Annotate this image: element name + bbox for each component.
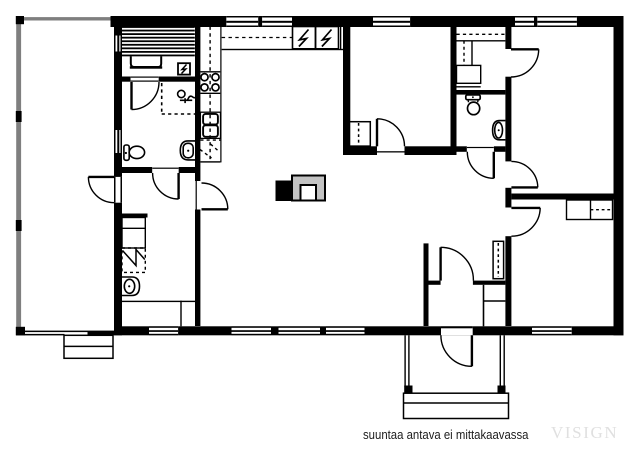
svg-text:VISIGN: VISIGN <box>551 423 618 442</box>
svg-text:suuntaa antava ei mittakaavass: suuntaa antava ei mittakaavassa <box>363 427 529 442</box>
